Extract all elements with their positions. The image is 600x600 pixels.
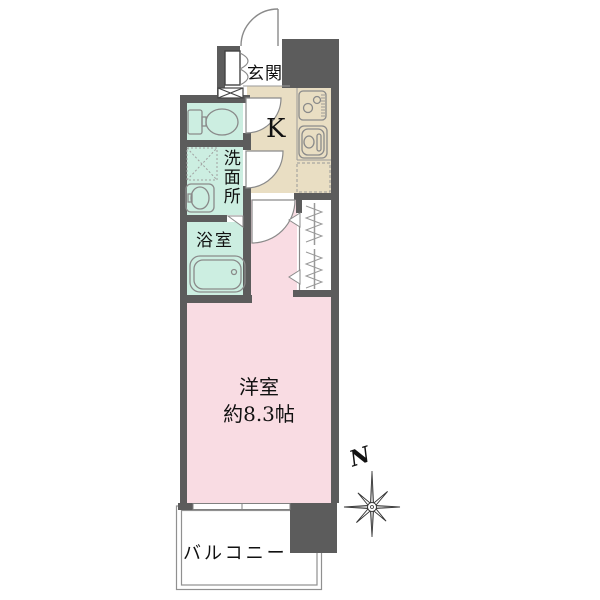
wall-segment (187, 140, 243, 147)
western-room-name: 洋室 (187, 374, 331, 401)
wall-segment (180, 295, 252, 303)
bathroom-label: 浴室 (186, 226, 244, 251)
balcony-window-icon (193, 504, 290, 510)
door-swing-arc (241, 9, 278, 46)
wall-segment (294, 193, 339, 200)
entrance-door-icon (241, 9, 278, 46)
wall-segment (290, 503, 337, 553)
wall-segment (296, 200, 302, 213)
wall-segment (243, 133, 251, 150)
genkan-label: 玄関 (238, 59, 292, 84)
wall-segment (187, 215, 228, 222)
wall-segment (293, 290, 339, 297)
western-room-size: 約8.3帖 (187, 401, 331, 428)
washroom-label: 洗面所 (220, 149, 239, 206)
compass-icon (344, 471, 400, 537)
balcony-label: バルコニー (183, 539, 288, 565)
kitchen-label: K (266, 114, 285, 144)
closet-floor (300, 200, 331, 290)
western-room-label: 洋室 約8.3帖 (187, 374, 331, 428)
floor-plan: 玄関 K 洗面所 浴室 洋室 約8.3帖 バルコニー N (0, 0, 600, 600)
meter-box-icon (218, 88, 243, 98)
floor-plan-drawing (0, 0, 600, 600)
